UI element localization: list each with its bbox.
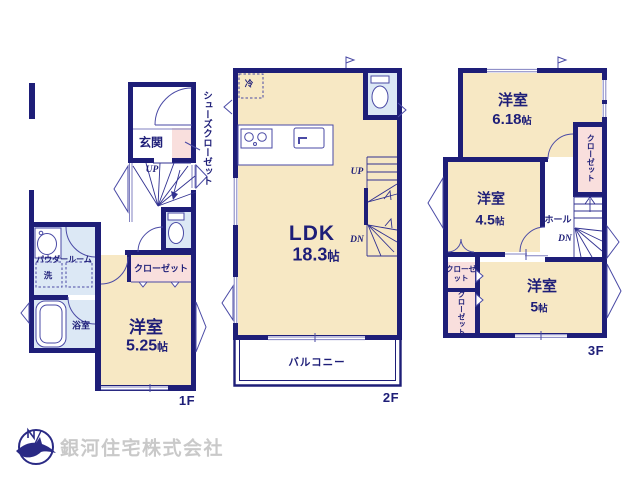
closet-label-1f: クローゼット bbox=[134, 264, 188, 273]
f3-bedroom-a-size-value: 6.18 bbox=[492, 111, 521, 128]
closet-south-label: クローゼット bbox=[457, 291, 465, 336]
bathtub-icon bbox=[36, 301, 66, 347]
ldk-size-value: 18.3 bbox=[292, 245, 327, 265]
f3-bedroom-a-size-unit: 帖 bbox=[522, 116, 532, 127]
vanity-sink-icon bbox=[35, 228, 61, 258]
f1-bedroom-size-value: 5.25 bbox=[126, 338, 157, 355]
closet-mid-label: クローゼット bbox=[444, 265, 478, 282]
f3-bedroom-c-size-unit: 帖 bbox=[538, 304, 548, 315]
vent-flag-2f bbox=[346, 57, 354, 68]
floor-plan: 玄関 シューズクローゼット UP パウダールーム 洗 浴室 クローゼット 洋室 … bbox=[0, 0, 640, 480]
f3-bedroom-b-size-unit: 帖 bbox=[495, 217, 505, 228]
f3-bedroom-c-size: 5帖 bbox=[530, 300, 547, 315]
f1-bedroom-size-unit: 帖 bbox=[157, 342, 168, 354]
down-stairs-label-3f: DN bbox=[558, 235, 572, 245]
powder-room-label: パウダールーム bbox=[36, 256, 92, 264]
stairs-1f bbox=[133, 163, 196, 206]
ldk-name: LDK bbox=[289, 223, 335, 245]
toilet-icon-1f bbox=[168, 213, 184, 244]
f3-bedroom-b-size-value: 4.5 bbox=[476, 212, 495, 228]
toilet-icon-2f bbox=[371, 76, 389, 108]
fridge-label: 冷 bbox=[245, 80, 254, 89]
kitchen-sink-icon bbox=[294, 128, 324, 148]
ldk-size-unit: 帖 bbox=[327, 250, 339, 264]
balcony-label: バルコニー bbox=[288, 357, 345, 368]
shoe-closet-label: シューズクローゼット bbox=[201, 91, 211, 186]
f3-bedroom-b-name: 洋室 bbox=[477, 192, 505, 207]
floor-tag-3f: 3F bbox=[588, 344, 604, 358]
f2-room-fills bbox=[238, 73, 397, 335]
hall-label: ホール bbox=[544, 215, 571, 224]
washer-label: 洗 bbox=[44, 272, 53, 281]
stove-icon bbox=[241, 129, 272, 148]
bathroom-label: 浴室 bbox=[72, 321, 90, 330]
f3-bedroom-b-size: 4.5帖 bbox=[476, 213, 505, 228]
floor-tag-1f: 1F bbox=[179, 394, 195, 408]
entrance-door-arc bbox=[133, 88, 192, 129]
floor-tag-2f: 2F bbox=[383, 391, 399, 405]
entrance-label: 玄関 bbox=[139, 137, 163, 150]
stairs-3f bbox=[574, 197, 602, 257]
vent-flag-3f bbox=[558, 57, 566, 68]
f3-bedroom-c-size-value: 5 bbox=[530, 299, 538, 315]
down-stairs-label-2f: DN bbox=[350, 236, 364, 246]
company-logo-bird-icon bbox=[16, 430, 56, 464]
f1-bedroom-size: 5.25帖 bbox=[126, 339, 168, 356]
f3-bedroom-a-name: 洋室 bbox=[498, 93, 528, 109]
floor-1f-plan bbox=[21, 82, 207, 392]
f3-bedroom-c-name: 洋室 bbox=[527, 279, 557, 295]
up-stairs-label-1f: UP bbox=[146, 166, 159, 176]
company-name: 銀河住宅株式会社 bbox=[60, 434, 224, 461]
up-stairs-label-2f: UP bbox=[351, 168, 364, 178]
f1-bedroom-name: 洋室 bbox=[129, 319, 163, 337]
closet-north-label: クローゼット bbox=[586, 134, 594, 182]
ldk-size: 18.3帖 bbox=[292, 246, 339, 265]
f3-bedroom-a-size: 6.18帖 bbox=[492, 112, 531, 128]
